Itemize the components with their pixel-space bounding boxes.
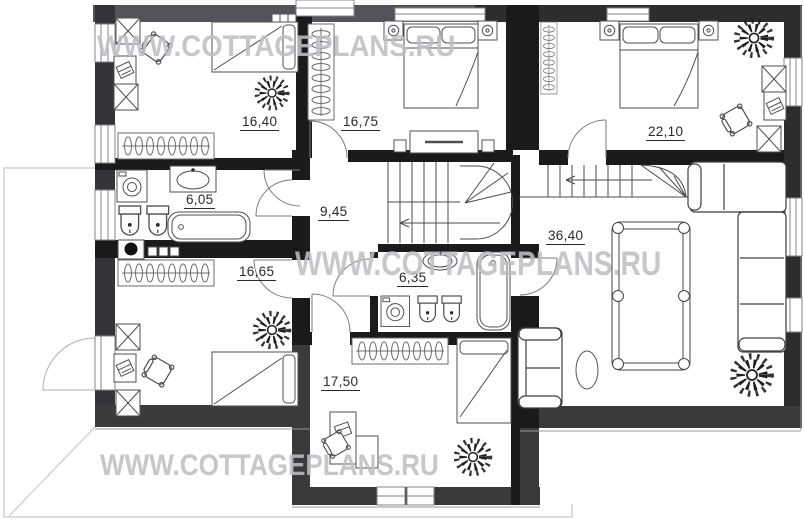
double-bed: [404, 24, 478, 108]
desk: [114, 354, 136, 382]
window: [784, 298, 802, 332]
window: [395, 8, 485, 21]
window: [607, 8, 649, 21]
window: [377, 487, 405, 505]
desk: [114, 56, 136, 84]
double-bed: [620, 24, 698, 108]
nightstand: [384, 21, 403, 40]
window: [95, 125, 115, 163]
radiator: [352, 338, 448, 364]
room-area-label: 16,65: [237, 264, 276, 281]
staircase-living: [519, 165, 688, 197]
room-bathroom-middle: [381, 251, 510, 330]
toilet: [418, 296, 437, 322]
floor-plan-drawing: [0, 0, 804, 522]
chair: [138, 31, 173, 65]
room-area-label: 9,45: [318, 204, 349, 221]
window: [95, 24, 115, 62]
chair: [719, 103, 753, 137]
window: [784, 58, 802, 106]
wardrobe-icon: [114, 84, 138, 110]
door-arc: [568, 120, 606, 158]
plant: [737, 21, 772, 56]
toilet: [119, 206, 141, 235]
bathtub: [168, 212, 250, 242]
door-arc: [312, 294, 350, 332]
sink: [423, 251, 457, 270]
room-area-label: 6,35: [397, 270, 428, 287]
sink: [170, 166, 216, 192]
nightstand: [478, 21, 497, 40]
staircase-main: [388, 162, 513, 243]
single-bed: [212, 22, 298, 72]
bidet: [147, 206, 169, 235]
wardrobe-icon: [116, 18, 140, 44]
washing-machine: [117, 170, 147, 202]
single-bed: [212, 352, 298, 406]
door-arc: [520, 258, 557, 295]
room-area-label: 17,50: [321, 374, 360, 391]
door-arc: [43, 338, 95, 390]
nightstand: [600, 21, 619, 40]
desk: [764, 92, 786, 120]
single-bed: [457, 338, 511, 423]
room-bedroom-top-middle: [308, 21, 497, 153]
wardrobe-icon: [757, 126, 781, 152]
window: [95, 190, 115, 240]
plant: [733, 356, 771, 394]
bidet: [442, 296, 461, 322]
bathtub: [477, 252, 510, 330]
room-bedroom-bottom-left: [114, 260, 298, 416]
nightstand: [699, 21, 718, 40]
floor-plan-page: 16,40 16,75 22,10 6,05 9,45 16,65 6,35 3…: [0, 0, 804, 522]
room-area-label: 36,40: [546, 228, 585, 245]
side-table: [576, 351, 598, 389]
radiator: [308, 24, 334, 120]
radiator: [118, 133, 214, 159]
window: [784, 198, 802, 256]
dresser: [394, 131, 494, 153]
room-area-label: 16,75: [341, 114, 380, 131]
corner-sofa: [688, 162, 786, 352]
plant: [257, 78, 287, 108]
plant: [256, 314, 289, 347]
wardrobe-icon: [116, 390, 140, 416]
loveseat-sofa: [518, 328, 562, 408]
chimney-shaft: [296, 0, 354, 16]
radiator: [541, 22, 557, 94]
door-arc: [333, 259, 370, 296]
wardrobe-icon: [116, 324, 140, 350]
room-living: [518, 162, 786, 408]
chair: [141, 354, 175, 388]
washing-machine: [381, 296, 410, 326]
wardrobe-icon: [762, 66, 786, 92]
room-area-label: 16,40: [240, 114, 279, 131]
room-bedroom-top-left: [114, 14, 298, 159]
radiator: [118, 260, 214, 286]
billiard-table: [612, 222, 690, 370]
window: [407, 487, 434, 505]
door-arc: [256, 180, 292, 216]
room-area-label: 22,10: [646, 124, 685, 141]
balcony-door: [95, 336, 115, 390]
room-bedroom-bottom-mid: [320, 338, 511, 474]
room-area-label: 6,05: [184, 192, 215, 209]
plant: [457, 441, 490, 474]
